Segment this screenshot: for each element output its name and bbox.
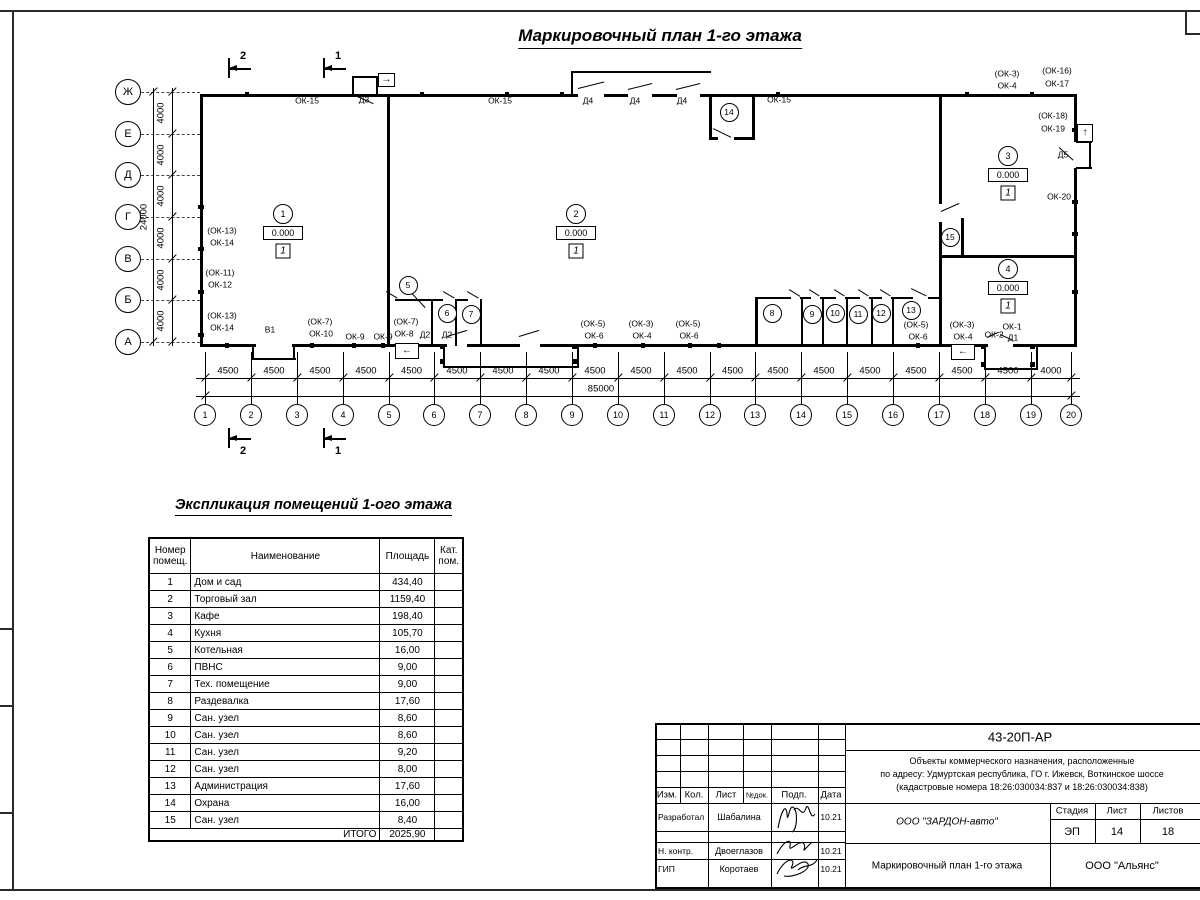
wall-tick — [381, 343, 385, 348]
porch-line — [571, 71, 711, 73]
name-developed: Шабалина — [717, 812, 760, 822]
partition-wall — [822, 297, 824, 346]
explication-row: 10Сан. узел8,60 — [149, 727, 463, 744]
doc-number: 43-20П-АР — [988, 730, 1052, 745]
entry-arrow-icon: ← — [951, 344, 975, 360]
floor-type-mark: 1 — [1001, 299, 1016, 314]
room-number: 14 — [720, 103, 739, 122]
window-door-label: ОК-12 — [208, 281, 232, 290]
explication-row: 3Кафе198,40 — [149, 608, 463, 625]
dimension-label: 4000 — [156, 144, 167, 165]
porch-line — [293, 347, 295, 360]
dimension-label: 4500 — [997, 366, 1018, 377]
axis-column-marker: 17 — [928, 404, 950, 426]
room-name-cell: ПВНС — [191, 659, 380, 676]
tb-header-izm: Изм. — [657, 790, 677, 801]
window-door-label: ОК-6 — [908, 333, 927, 342]
partition-wall — [801, 297, 803, 346]
dimension-label: 4500 — [355, 366, 376, 377]
axis-column-marker: 7 — [469, 404, 491, 426]
room-name-cell: Котельная — [191, 642, 380, 659]
window-door-label: ОК-6 — [679, 332, 698, 341]
total-label: ИТОГО — [149, 829, 380, 842]
wall-tick — [1072, 128, 1078, 132]
org-name: ООО "Альянс" — [1085, 860, 1159, 872]
window-door-label: ОК-8 — [394, 330, 413, 339]
project-description-line1: Объекты коммерческого назначения, распол… — [910, 756, 1135, 766]
door-leaf — [789, 289, 801, 297]
axis-row-marker: Е — [115, 121, 141, 147]
window-door-label: ОК-15 — [767, 96, 791, 105]
date-developed: 10.21 — [820, 812, 841, 822]
door-leaf — [834, 289, 845, 297]
wall-tick — [688, 343, 692, 348]
axis-column-marker: 12 — [699, 404, 721, 426]
partition-wall — [455, 299, 457, 346]
window-door-label: (ОК-18) — [1038, 112, 1068, 121]
drawing-name: Маркировочный план 1-го этажа — [872, 861, 1022, 872]
wall-tick — [717, 343, 721, 348]
room-area-cell: 434,40 — [380, 574, 435, 591]
axis-column-marker: 16 — [882, 404, 904, 426]
elevation-mark: 0.000 — [556, 226, 596, 240]
door-leaf — [578, 81, 605, 89]
explication-row: 5Котельная16,00 — [149, 642, 463, 659]
titleblock-line — [845, 843, 1200, 844]
entry-arrow-icon: ↑ — [1077, 124, 1093, 142]
axis-column-marker: 15 — [836, 404, 858, 426]
window-door-label: Д4 — [677, 97, 687, 106]
wall — [939, 255, 1077, 258]
tb-header-list: Лист — [716, 790, 737, 801]
dimension-label: 4500 — [584, 366, 605, 377]
section-mark-label: 2 — [240, 50, 246, 62]
axis-row-marker: Д — [115, 162, 141, 188]
window-door-label: Д4 — [583, 97, 593, 106]
porch-line — [1036, 347, 1038, 370]
room-name-cell: Администрация — [191, 778, 380, 795]
room-cat-cell — [435, 591, 463, 608]
axis-column-marker: 3 — [286, 404, 308, 426]
room-number-cell: 4 — [149, 625, 191, 642]
titleblock-line — [771, 723, 772, 888]
window-door-label: (ОК-5) — [676, 320, 701, 329]
explication-row: 7Тех. помещение9,00 — [149, 676, 463, 693]
room-number: 15 — [941, 228, 960, 247]
room-number-cell: 8 — [149, 693, 191, 710]
tb-header-kol: Кол. — [685, 790, 704, 801]
room-area-cell: 17,60 — [380, 778, 435, 795]
window-door-label: ОК-10 — [309, 330, 333, 339]
dimension-label: 4500 — [951, 366, 972, 377]
window-door-label: Д2 — [420, 331, 430, 340]
room-cat-cell — [435, 795, 463, 812]
axis-column-marker: 10 — [607, 404, 629, 426]
door-leaf — [809, 289, 820, 297]
room-number-cell: 11 — [149, 744, 191, 761]
room-number: 5 — [399, 276, 418, 295]
room-cat-cell — [435, 625, 463, 642]
dimension-label: 4500 — [401, 366, 422, 377]
elevation-mark: 0.000 — [263, 226, 303, 240]
floor-type-mark: 1 — [1001, 186, 1016, 201]
dimension-label: 4000 — [1040, 366, 1061, 377]
axis-column-marker: 9 — [561, 404, 583, 426]
date-gip: 10.21 — [820, 864, 841, 874]
room-area-cell: 8,00 — [380, 761, 435, 778]
wall-tick — [916, 343, 920, 348]
total-category-empty — [435, 829, 463, 842]
partition-wall — [431, 299, 433, 346]
partition-wall — [891, 297, 913, 299]
room-area-cell: 16,00 — [380, 795, 435, 812]
room-number-cell: 3 — [149, 608, 191, 625]
dimension-label: 4500 — [676, 366, 697, 377]
window-door-label: Д5 — [1058, 151, 1068, 160]
titleblock-line — [1050, 803, 1051, 888]
wall-tick — [198, 333, 204, 337]
axis-column-marker: 18 — [974, 404, 996, 426]
door-leaf — [467, 291, 479, 299]
window-door-label: (ОК-5) — [904, 321, 929, 330]
role-normcontrol: Н. контр. — [658, 846, 693, 856]
titleblock-line — [655, 787, 845, 788]
section-arrow-icon — [229, 435, 237, 441]
name-normcontrol: Двоеглазов — [715, 846, 763, 856]
room-area-cell: 9,20 — [380, 744, 435, 761]
dimension-total-label: 85000 — [588, 384, 614, 395]
axis-row-marker: В — [115, 246, 141, 272]
axis-row-marker: А — [115, 329, 141, 355]
window-door-label: (ОК-7) — [394, 318, 419, 327]
axis-column-marker: 8 — [515, 404, 537, 426]
window-door-label: ОК-4 — [953, 333, 972, 342]
door-leaf — [941, 203, 960, 212]
blueprint-sheet: { "page": { "title": "Маркировочный план… — [0, 0, 1200, 900]
explication-body: 1Дом и сад434,402Торговый зал1159,403Каф… — [149, 574, 463, 829]
col-header-number: Номер помещ. — [149, 538, 191, 574]
room-number-cell: 1 — [149, 574, 191, 591]
titleblock-line — [845, 723, 846, 888]
wall-tick — [352, 343, 356, 348]
wall-tick — [245, 92, 249, 97]
explication-table: Номер помещ. Наименование Площадь Кат. п… — [148, 537, 464, 842]
explication-header-row: Номер помещ. Наименование Площадь Кат. п… — [149, 538, 463, 574]
room-number-cell: 6 — [149, 659, 191, 676]
room-name-cell: Торговый зал — [191, 591, 380, 608]
titleblock-line — [743, 723, 744, 803]
explication-row: 14Охрана16,00 — [149, 795, 463, 812]
explication-row: 6ПВНС9,00 — [149, 659, 463, 676]
wall — [700, 94, 1077, 97]
explication-row: 1Дом и сад434,40 — [149, 574, 463, 591]
explication-row: 9Сан. узел8,60 — [149, 710, 463, 727]
section-arrow-icon — [324, 435, 332, 441]
room-cat-cell — [435, 676, 463, 693]
window-door-label: ОК-4 — [632, 332, 651, 341]
titleblock-line — [655, 755, 845, 756]
room-cat-cell — [435, 642, 463, 659]
room-cat-cell — [435, 778, 463, 795]
wall — [734, 137, 755, 140]
room-number-cell: 9 — [149, 710, 191, 727]
window-door-label: ОК-4 — [997, 82, 1016, 91]
axis-column-marker: 11 — [653, 404, 675, 426]
axis-column-marker: 20 — [1060, 404, 1082, 426]
tb-header-data: Дата — [820, 790, 841, 801]
partition-wall — [395, 299, 432, 301]
window-door-label: В1 — [265, 326, 275, 335]
window-door-label: (ОК-13) — [207, 227, 237, 236]
window-door-label: (ОК-5) — [581, 320, 606, 329]
dimension-label: 4500 — [309, 366, 330, 377]
room-number: 11 — [849, 305, 868, 324]
dimension-line — [196, 378, 1080, 379]
wall-tick — [1072, 290, 1078, 294]
room-number-cell: 2 — [149, 591, 191, 608]
window-door-label: ОК-15 — [295, 97, 319, 106]
total-value: 2025,90 — [380, 829, 435, 842]
door-leaf — [628, 83, 653, 90]
room-number: 1 — [273, 204, 293, 224]
room-number: 3 — [998, 146, 1018, 166]
dimension-label: 4500 — [813, 366, 834, 377]
room-cat-cell — [435, 659, 463, 676]
room-cat-cell — [435, 574, 463, 591]
window-door-label: ОК-15 — [488, 97, 512, 106]
sheets-value: 18 — [1162, 826, 1174, 838]
dimension-label: 4500 — [767, 366, 788, 377]
dimension-label: 4500 — [446, 366, 467, 377]
room-cat-cell — [435, 710, 463, 727]
room-area-cell: 16,00 — [380, 642, 435, 659]
room-number: 2 — [566, 204, 586, 224]
window-door-label: Д2 — [442, 331, 452, 340]
titleblock-line — [655, 739, 845, 740]
titleblock-line — [845, 750, 1200, 751]
window-door-label: (ОК-3) — [629, 320, 654, 329]
section-mark-label: 2 — [240, 445, 246, 457]
titleblock-line — [708, 723, 709, 888]
partition-wall — [928, 297, 940, 299]
wall — [939, 94, 942, 204]
titleblock-line — [1050, 819, 1200, 820]
porch-line — [252, 358, 296, 360]
explication-row: 15Сан. узел8,40 — [149, 812, 463, 829]
wall-tick — [1072, 232, 1078, 236]
room-name-cell: Сан. узел — [191, 812, 380, 829]
wall — [387, 94, 390, 347]
explication-row: 12Сан. узел8,00 — [149, 761, 463, 778]
sheet-label: Лист — [1107, 806, 1128, 817]
axis-column-marker: 5 — [378, 404, 400, 426]
window-door-label: ОК-17 — [1045, 80, 1069, 89]
window-door-label: ОК-19 — [1041, 125, 1065, 134]
door-leaf — [880, 289, 891, 297]
room-number-cell: 10 — [149, 727, 191, 744]
room-name-cell: Сан. узел — [191, 710, 380, 727]
explication-row: 2Торговый зал1159,40 — [149, 591, 463, 608]
project-description-line3: (кадастровые номера 18:26:030034:837 и 1… — [896, 782, 1148, 792]
dimension-label: 4000 — [156, 269, 167, 290]
titleblock-line — [1095, 803, 1096, 843]
room-area-cell: 8,40 — [380, 812, 435, 829]
room-cat-cell — [435, 812, 463, 829]
porch-line — [352, 76, 378, 78]
wall-tick — [1072, 200, 1078, 204]
partition-wall — [892, 297, 894, 346]
window-door-label: ОК-14 — [210, 239, 234, 248]
room-name-cell: Кухня — [191, 625, 380, 642]
wall-tick — [310, 343, 314, 348]
room-number-cell: 13 — [149, 778, 191, 795]
room-cat-cell — [435, 693, 463, 710]
window-door-label: ОК-6 — [584, 332, 603, 341]
signature-developed — [774, 800, 818, 834]
name-gip: Коротаев — [720, 864, 759, 874]
wall — [752, 94, 755, 140]
titleblock-line — [655, 803, 1200, 804]
date-normcontrol: 10.21 — [820, 846, 841, 856]
explication-row: 13Администрация17,60 — [149, 778, 463, 795]
dimension-label: 4500 — [630, 366, 651, 377]
titleblock-border — [655, 887, 1200, 889]
wall — [540, 344, 988, 347]
room-cat-cell — [435, 761, 463, 778]
wall-tick — [225, 343, 229, 348]
porch-line — [577, 347, 579, 368]
wall — [292, 344, 447, 347]
window-door-label: ОК-20 — [1047, 193, 1071, 202]
explication-title: Экспликация помещений 1-ого этажа — [175, 497, 452, 516]
partition-wall — [480, 299, 482, 346]
axis-column-marker: 14 — [790, 404, 812, 426]
wall-tick — [593, 343, 597, 348]
porch-post — [440, 359, 445, 364]
wall-tick — [641, 343, 645, 348]
room-area-cell: 105,70 — [380, 625, 435, 642]
section-mark-label: 1 — [335, 50, 341, 62]
dimension-label: 4500 — [905, 366, 926, 377]
col-header-category: Кат. пом. — [435, 538, 463, 574]
room-number-cell: 12 — [149, 761, 191, 778]
dimension-line — [172, 88, 173, 346]
window-door-label: ОК-9 — [373, 333, 392, 342]
room-number-cell: 15 — [149, 812, 191, 829]
window-door-label: (ОК-16) — [1042, 67, 1072, 76]
room-name-cell: Дом и сад — [191, 574, 380, 591]
axis-row-marker: Ж — [115, 79, 141, 105]
tb-header-podp: Подп. — [781, 790, 806, 801]
explication-row: 8Раздевалка17,60 — [149, 693, 463, 710]
titleblock-line — [1140, 803, 1141, 843]
axis-row-marker: Г — [115, 204, 141, 230]
room-area-cell: 9,00 — [380, 659, 435, 676]
room-cat-cell — [435, 608, 463, 625]
signature-gip — [774, 854, 820, 880]
room-number: 6 — [438, 304, 457, 323]
door-leaf — [676, 83, 701, 90]
porch-line — [1089, 141, 1091, 168]
tb-header-ndok: №док. — [746, 791, 768, 800]
dimension-label: 4000 — [156, 102, 167, 123]
explication-row: 11Сан. узел9,20 — [149, 744, 463, 761]
explication-row: 4Кухня105,70 — [149, 625, 463, 642]
door-leaf — [858, 289, 869, 297]
role-developed: Разработал — [658, 812, 704, 822]
dimension-label: 4500 — [538, 366, 559, 377]
partition-wall — [456, 299, 468, 301]
room-number: 13 — [902, 301, 921, 320]
room-number-cell: 5 — [149, 642, 191, 659]
room-number-cell: 7 — [149, 676, 191, 693]
dimension-label: 4000 — [156, 227, 167, 248]
section-arrow-icon — [229, 65, 237, 71]
titleblock-border — [655, 723, 1200, 725]
room-name-cell: Тех. помещение — [191, 676, 380, 693]
room-name-cell: Сан. узел — [191, 761, 380, 778]
col-header-area: Площадь — [380, 538, 435, 574]
room-cat-cell — [435, 727, 463, 744]
dimension-label: 4500 — [859, 366, 880, 377]
room-area-cell: 1159,40 — [380, 591, 435, 608]
room-name-cell: Сан. узел — [191, 744, 380, 761]
floor-type-mark: 1 — [569, 244, 584, 259]
titleblock-border — [655, 723, 657, 888]
room-name-cell: Сан. узел — [191, 727, 380, 744]
wall — [755, 297, 758, 347]
porch-line — [352, 76, 354, 95]
section-arrow-icon — [324, 65, 332, 71]
col-header-name: Наименование — [191, 538, 380, 574]
door-leaf — [911, 288, 927, 297]
stage-value: ЭП — [1064, 826, 1080, 838]
axis-column-marker: 2 — [240, 404, 262, 426]
axis-column-marker: 4 — [332, 404, 354, 426]
axis-column-marker: 19 — [1020, 404, 1042, 426]
room-name-cell: Раздевалка — [191, 693, 380, 710]
entry-arrow-icon: ← — [395, 343, 419, 359]
wall — [604, 94, 628, 97]
wall — [961, 218, 964, 258]
room-name-cell: Охрана — [191, 795, 380, 812]
dimension-total-label: 24000 — [139, 204, 150, 230]
porch-post — [440, 344, 445, 349]
dimension-line — [196, 396, 1080, 397]
window-door-label: ОК-1 — [1002, 323, 1021, 332]
wall-tick — [198, 290, 204, 294]
room-area-cell: 17,60 — [380, 693, 435, 710]
project-description-line2: по адресу: Удмуртская республика, ГО г. … — [880, 769, 1163, 779]
room-area-cell: 8,60 — [380, 710, 435, 727]
section-mark-label: 1 — [335, 445, 341, 457]
axis-column-marker: 1 — [194, 404, 216, 426]
partition-wall — [871, 297, 873, 346]
sheet-value: 14 — [1111, 826, 1123, 838]
room-number: 9 — [803, 305, 822, 324]
wall-tick — [965, 92, 969, 97]
window-door-label: ОК-2 — [984, 331, 1003, 340]
room-number-cell: 14 — [149, 795, 191, 812]
window-door-label: ОК-14 — [210, 324, 234, 333]
wall-tick — [198, 247, 204, 251]
elevation-mark: 0.000 — [988, 168, 1028, 182]
sheets-label: Листов — [1153, 806, 1184, 817]
stage-label: Стадия — [1056, 806, 1088, 817]
porch-post — [1030, 344, 1035, 349]
titleblock-line — [655, 771, 845, 772]
window-door-label: (ОК-3) — [995, 70, 1020, 79]
